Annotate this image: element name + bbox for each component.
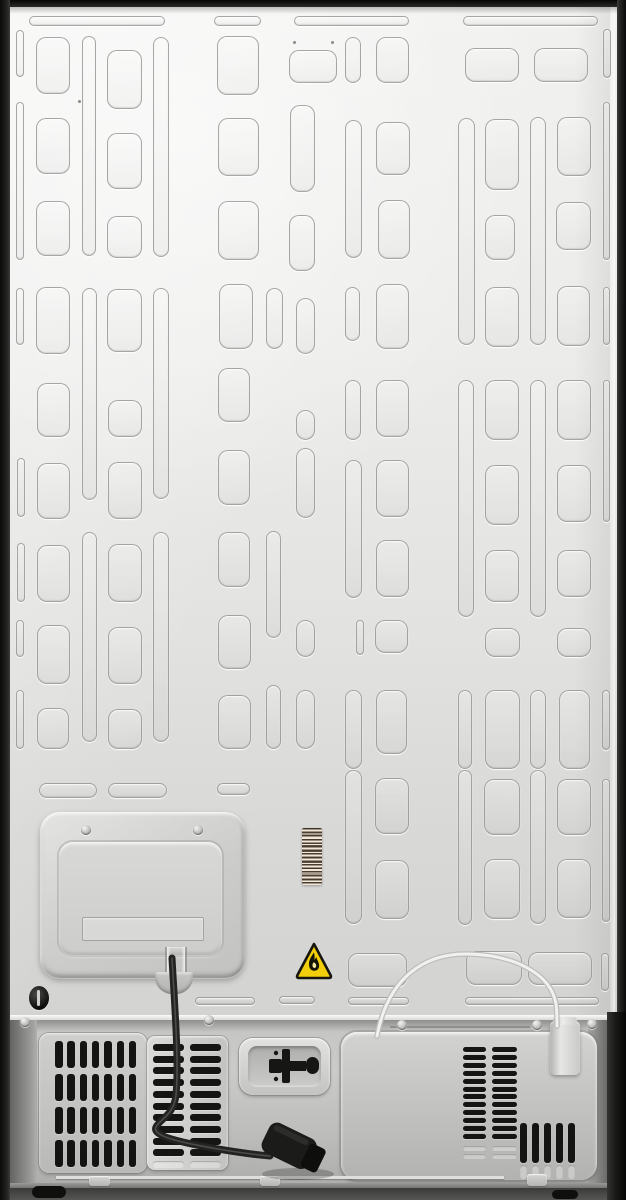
bracket-tab	[89, 1176, 110, 1186]
screw-icon	[20, 1017, 30, 1027]
leveling-foot	[552, 1190, 578, 1199]
screw-icon	[81, 825, 91, 835]
cabinet-left-edge	[0, 0, 10, 1200]
refrigerator-back-view	[0, 0, 626, 1200]
cabinet-top-edge	[0, 0, 626, 7]
screw-icon	[193, 825, 203, 835]
leveling-foot	[32, 1186, 66, 1198]
screw-icon	[587, 1019, 597, 1029]
screw-icon	[532, 1020, 542, 1030]
screw-icon	[204, 1015, 214, 1025]
screws-tabs-feet	[0, 0, 626, 1200]
screw-icon	[397, 1020, 407, 1030]
bracket-tab	[260, 1176, 280, 1186]
bracket-tab	[527, 1174, 547, 1186]
cabinet-right-edge-lower	[607, 1012, 626, 1200]
